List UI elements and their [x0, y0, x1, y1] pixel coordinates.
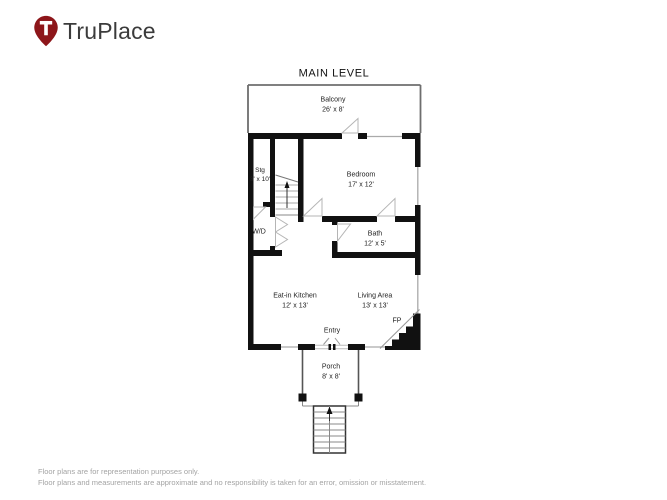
- entry-door: [315, 338, 348, 350]
- disclaimer-line-1: Floor plans are for representation purpo…: [38, 466, 426, 477]
- room-dims-bedroom: 17' x 12': [348, 182, 374, 189]
- room-label-living: Living Area: [358, 293, 393, 300]
- plan-title: MAIN LEVEL: [299, 69, 370, 80]
- bifold-doors: [276, 217, 288, 247]
- room-dims-balcony: 26' x 8': [322, 107, 344, 114]
- room-dims-bath: 12' x 5': [364, 241, 386, 248]
- fireplace: [380, 310, 421, 351]
- room-label-kitchen: Eat-in Kitchen: [273, 293, 317, 300]
- room-label-balcony: Balcony: [321, 97, 346, 104]
- room-dims-storage: 3' x 10': [250, 177, 270, 184]
- floorplan-page: TruPlace: [0, 0, 667, 500]
- exterior-stairs: [314, 406, 346, 453]
- room-dims-porch: 8' x 8': [322, 374, 340, 381]
- room-label-bath: Bath: [368, 231, 382, 238]
- disclaimer: Floor plans are for representation purpo…: [38, 466, 426, 488]
- room-label-storage: Stg: [255, 168, 265, 175]
- disclaimer-line-2: Floor plans and measurements are approxi…: [38, 477, 426, 488]
- interior-stairs: [276, 175, 299, 215]
- fireplace-label: FP: [393, 318, 402, 325]
- room-label-bedroom: Bedroom: [347, 172, 375, 179]
- room-label-washer-dryer: W/D: [252, 229, 266, 236]
- entry-label: Entry: [324, 328, 340, 335]
- room-label-porch: Porch: [322, 364, 340, 371]
- room-dims-kitchen: 12' x 13': [282, 303, 308, 310]
- room-dims-living: 13' x 13': [362, 303, 388, 310]
